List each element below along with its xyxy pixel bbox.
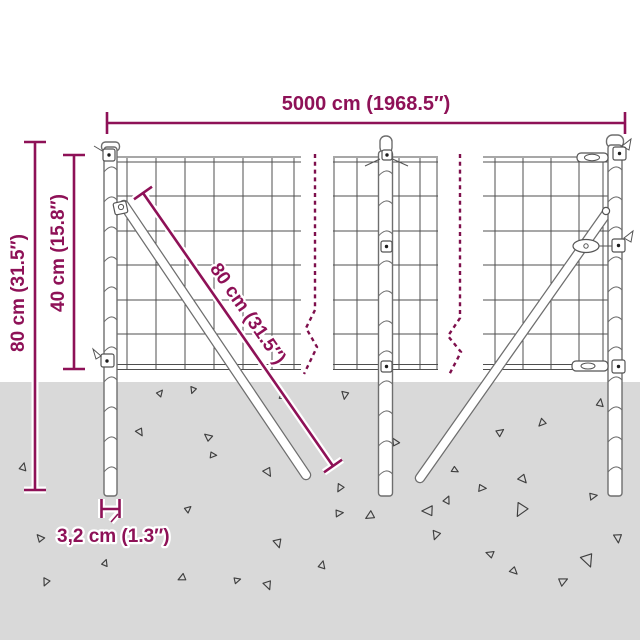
- break-line-left: [304, 154, 317, 374]
- post-right: [607, 135, 624, 496]
- post-width-label: 3,2 cm (1.3″): [57, 526, 170, 547]
- total-width-label: 5000 cm (1968.5″): [282, 93, 451, 115]
- mesh-panel-right: [483, 157, 609, 370]
- dimension-above-ground: 40 cm (15.8″): [48, 155, 85, 369]
- break-line-right: [448, 154, 461, 375]
- dimension-total-width: 5000 cm (1968.5″): [107, 93, 625, 134]
- product-dimension-image: 5000 cm (1968.5″) 80 cm (31.5″) 40 cm (1…: [0, 0, 640, 640]
- fence-dimension-diagram: 5000 cm (1968.5″) 80 cm (31.5″) 40 cm (1…: [0, 0, 640, 640]
- fence-hardware: [93, 139, 633, 373]
- total-height-label: 80 cm (31.5″): [8, 234, 29, 352]
- above-ground-label: 40 cm (15.8″): [48, 194, 69, 312]
